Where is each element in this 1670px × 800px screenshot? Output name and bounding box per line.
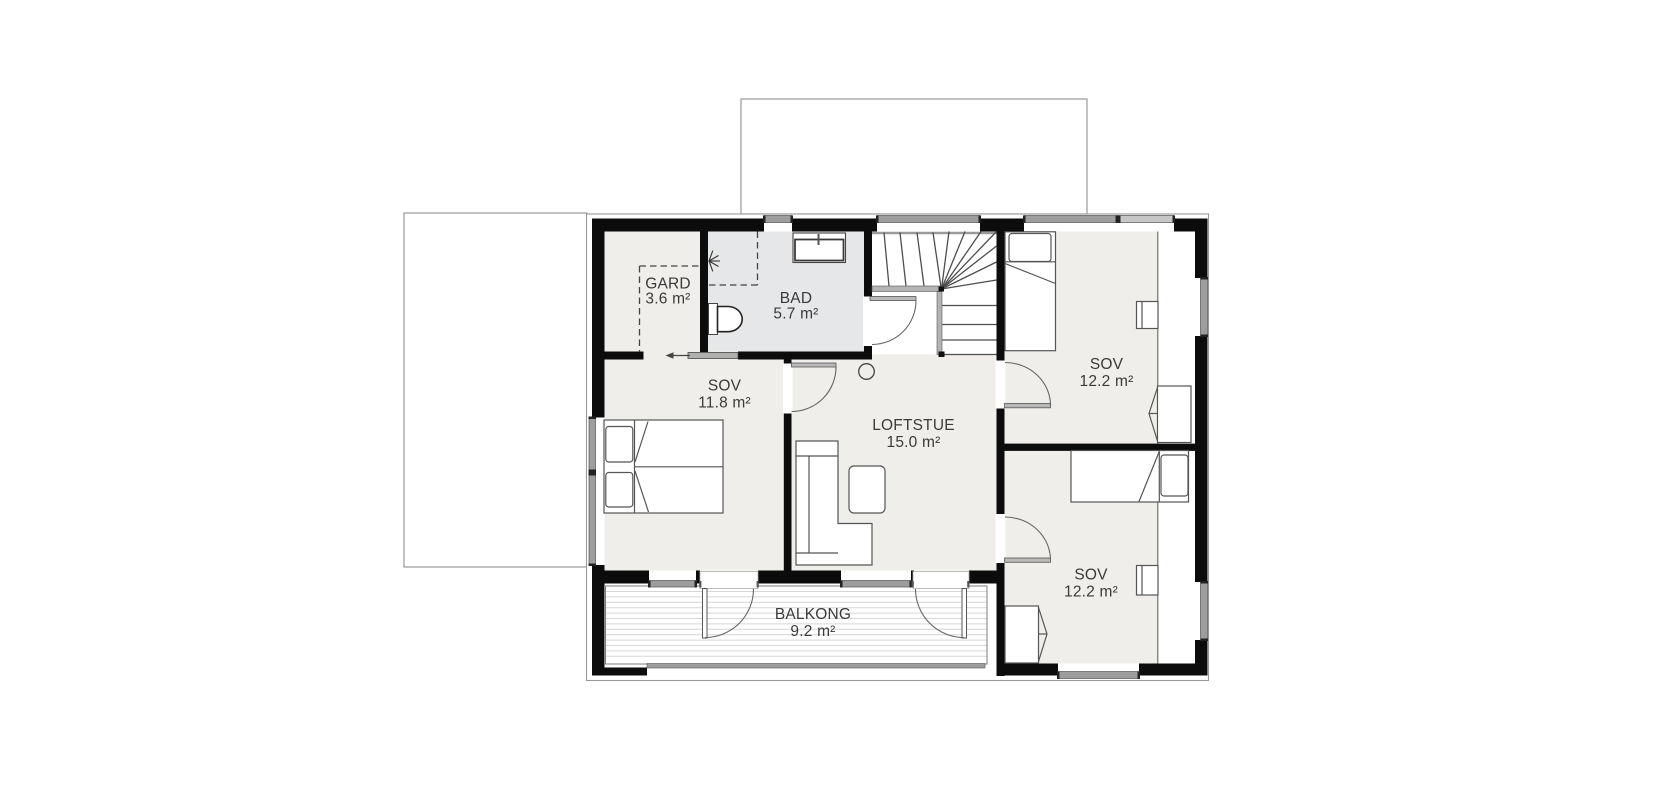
svg-text:5.7 m²: 5.7 m² [773, 306, 818, 323]
svg-text:9.2 m²: 9.2 m² [790, 623, 835, 640]
svg-text:15.0 m²: 15.0 m² [887, 434, 941, 451]
svg-text:LOFTSTUE: LOFTSTUE [872, 417, 955, 434]
svg-text:SOV: SOV [708, 378, 742, 395]
svg-text:BAD: BAD [780, 290, 812, 307]
svg-text:BALKONG: BALKONG [775, 606, 851, 623]
svg-text:3.6 m²: 3.6 m² [645, 291, 690, 308]
svg-text:SOV: SOV [1090, 356, 1124, 373]
svg-text:12.2 m²: 12.2 m² [1080, 373, 1134, 390]
svg-text:11.8 m²: 11.8 m² [698, 395, 751, 412]
svg-text:12.2 m²: 12.2 m² [1064, 584, 1118, 601]
svg-text:SOV: SOV [1074, 567, 1108, 584]
